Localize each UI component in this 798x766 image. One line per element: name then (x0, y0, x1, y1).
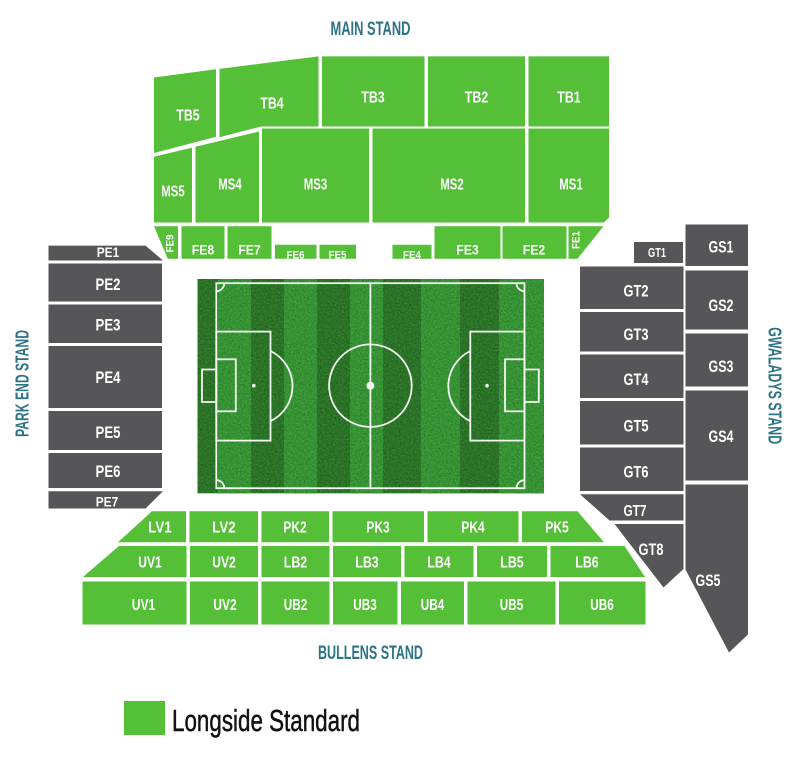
svg-text:PE4: PE4 (96, 368, 121, 387)
svg-text:GS5: GS5 (696, 571, 721, 590)
svg-text:MAIN STAND: MAIN STAND (331, 19, 411, 40)
svg-text:PE1: PE1 (97, 245, 120, 260)
svg-text:PK5: PK5 (545, 520, 568, 537)
svg-text:GT4: GT4 (624, 370, 649, 389)
svg-text:TB5: TB5 (176, 108, 199, 125)
svg-text:GT6: GT6 (624, 462, 649, 481)
svg-text:Longside Standard: Longside Standard (172, 703, 360, 738)
svg-text:FE1: FE1 (570, 231, 582, 249)
svg-text:PE2: PE2 (96, 275, 121, 294)
svg-text:LB6: LB6 (575, 555, 598, 572)
svg-text:FE9: FE9 (164, 235, 176, 253)
svg-text:FE5: FE5 (329, 249, 347, 261)
svg-text:UV2: UV2 (212, 555, 235, 572)
svg-text:FE2: FE2 (523, 243, 546, 258)
svg-text:UB4: UB4 (421, 597, 444, 614)
svg-text:FE8: FE8 (192, 243, 215, 258)
svg-text:LV2: LV2 (212, 520, 235, 537)
svg-text:UB2: UB2 (284, 597, 307, 614)
svg-text:UV1: UV1 (132, 597, 155, 614)
svg-text:BULLENS STAND: BULLENS STAND (318, 643, 423, 664)
svg-text:GT1: GT1 (648, 245, 666, 260)
svg-text:MS1: MS1 (559, 177, 582, 194)
svg-text:PE3: PE3 (96, 315, 121, 334)
svg-text:GT5: GT5 (624, 416, 649, 435)
svg-text:GT2: GT2 (624, 281, 649, 300)
svg-text:LB4: LB4 (427, 555, 450, 572)
svg-text:PK4: PK4 (461, 520, 484, 537)
svg-text:LB3: LB3 (355, 555, 378, 572)
svg-text:GS4: GS4 (709, 427, 734, 446)
svg-text:FE6: FE6 (287, 249, 305, 261)
svg-text:LB2: LB2 (284, 555, 307, 572)
svg-text:UB3: UB3 (353, 597, 376, 614)
svg-text:FE4: FE4 (403, 249, 422, 261)
svg-text:LB5: LB5 (500, 555, 523, 572)
svg-text:PK2: PK2 (283, 520, 306, 537)
svg-text:MS3: MS3 (304, 177, 327, 194)
svg-text:UB5: UB5 (500, 597, 523, 614)
svg-text:PE7: PE7 (96, 495, 119, 510)
svg-text:GWALADYS STAND: GWALADYS STAND (765, 327, 785, 444)
svg-text:TB2: TB2 (465, 90, 488, 107)
svg-text:TB1: TB1 (557, 90, 580, 107)
svg-text:MS5: MS5 (161, 184, 184, 201)
svg-text:PE6: PE6 (96, 462, 121, 481)
svg-text:FE7: FE7 (238, 243, 261, 258)
svg-text:PE5: PE5 (96, 423, 121, 442)
svg-text:TB4: TB4 (260, 96, 283, 113)
svg-text:GT3: GT3 (624, 325, 649, 344)
svg-text:TB3: TB3 (361, 90, 384, 107)
svg-text:GT8: GT8 (639, 540, 664, 559)
svg-text:UV1: UV1 (138, 555, 161, 572)
svg-text:UB6: UB6 (590, 597, 613, 614)
svg-text:MS4: MS4 (218, 177, 241, 194)
svg-text:FE3: FE3 (456, 243, 479, 258)
svg-text:GS1: GS1 (709, 237, 734, 256)
svg-text:MS2: MS2 (440, 177, 463, 194)
svg-text:GT7: GT7 (623, 503, 646, 520)
svg-text:LV1: LV1 (148, 520, 171, 537)
svg-text:UV2: UV2 (213, 597, 236, 614)
svg-text:PARK END STAND: PARK END STAND (13, 330, 33, 437)
svg-text:GS3: GS3 (709, 357, 734, 376)
svg-text:PK3: PK3 (366, 520, 389, 537)
svg-text:GS2: GS2 (709, 296, 734, 315)
